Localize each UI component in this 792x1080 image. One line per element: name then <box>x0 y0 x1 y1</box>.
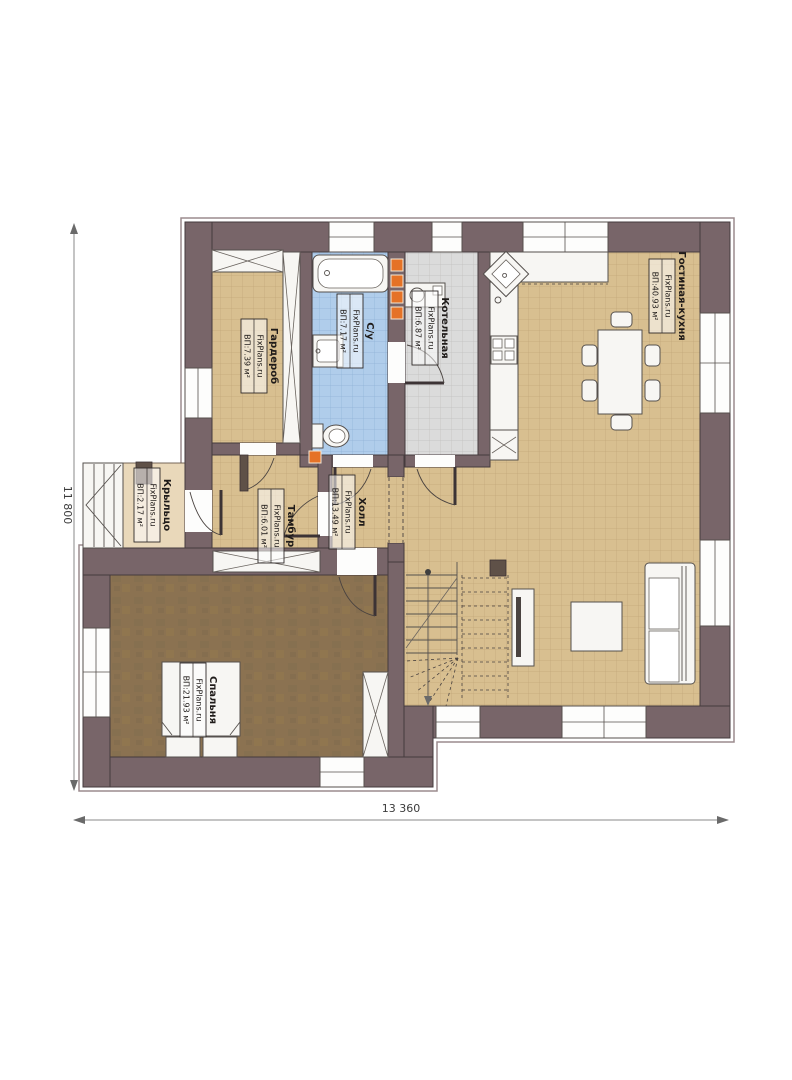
watermark: FixPlans.ru <box>273 504 282 547</box>
opening-hall-living <box>388 477 404 543</box>
watermark: FixPlans.ru <box>427 306 436 349</box>
floor-plan-page: Гостиная-кухня FixPlans.ru ВП:40.93 м² К… <box>0 0 792 1080</box>
closet-bedroom <box>363 672 388 757</box>
dining-chair <box>645 380 660 401</box>
room-area-hall: ВП:13.49 м² <box>331 488 340 537</box>
room-name-porch: Крыльцо <box>161 479 172 531</box>
window-left-wardrobe <box>185 368 212 418</box>
watermark: FixPlans.ru <box>149 483 158 526</box>
toilet <box>312 424 349 448</box>
room-area-porch: ВП:2.17 м² <box>136 483 145 527</box>
room-area-vestibule: ВП:6.01 м² <box>260 504 269 548</box>
floor-plan-drawing: Гостиная-кухня FixPlans.ru ВП:40.93 м² К… <box>0 0 792 1080</box>
watermark: FixPlans.ru <box>256 334 265 377</box>
window-bottom-bedroom <box>320 757 364 787</box>
tv-stand <box>512 589 534 666</box>
floor-bedroom <box>110 575 388 757</box>
stove <box>491 336 517 364</box>
dimension-height: 11 800 <box>61 223 78 791</box>
room-name-vestibule: Тамбур <box>285 505 297 547</box>
window-bottom-living <box>562 706 646 738</box>
room-name-bedroom: Спальня <box>207 676 218 724</box>
window-bottom-stairs <box>436 706 480 738</box>
dining-table <box>598 330 642 414</box>
label-porch: Крыльцо FixPlans.ru ВП:2.17 м² <box>134 468 172 542</box>
wall-bottom-bedroom <box>83 757 433 787</box>
pillow <box>166 737 200 757</box>
room-name-living: Гостиная-кухня <box>676 251 687 340</box>
room-area-bedroom: ВП:21.93 м² <box>182 676 191 725</box>
wall-wardrobe-bathroom <box>300 252 312 455</box>
room-name-hall: Холл <box>356 497 367 526</box>
kitchen-base-cabinet <box>490 430 518 460</box>
stairs-newel-post <box>490 560 506 576</box>
watermark: FixPlans.ru <box>195 678 204 721</box>
window-top-2 <box>432 222 462 252</box>
dimension-height-text: 11 800 <box>61 486 74 525</box>
label-wardrobe: Гардероб FixPlans.ru ВП:7.39 м² <box>241 319 280 393</box>
room-area-wardrobe: ВП:7.39 м² <box>243 334 252 378</box>
dimension-width-text: 13 360 <box>382 802 421 815</box>
dining-chair <box>611 312 632 327</box>
closet-wardrobe-right <box>283 252 300 443</box>
wall-boiler-kitchen <box>478 252 490 467</box>
dining-chair <box>611 415 632 430</box>
dining-chair <box>582 345 597 366</box>
wall-hall-living-lower <box>388 543 404 562</box>
room-area-bathroom: ВП:7.17 м² <box>339 309 348 353</box>
room-name-boiler: Котельная <box>439 297 450 358</box>
porch-steps <box>83 463 123 548</box>
dining-chair <box>645 345 660 366</box>
wall-right <box>700 222 730 738</box>
bathtub <box>313 255 388 292</box>
dimension-width: 13 360 <box>73 802 729 824</box>
room-area-living: ВП:40.93 м² <box>651 272 660 321</box>
wall-bedroom-right <box>388 562 404 757</box>
tv-screen <box>516 597 521 657</box>
wall-hall-living-upper <box>388 455 404 477</box>
window-top-1 <box>329 222 374 252</box>
watermark: FixPlans.ru <box>344 490 353 533</box>
closet-wardrobe-top <box>212 250 283 272</box>
watermark: FixPlans.ru <box>664 274 673 317</box>
room-name-wardrobe: Гардероб <box>268 328 280 384</box>
window-left-bedroom <box>83 628 110 717</box>
window-right-sofa <box>700 540 730 626</box>
window-kitchen <box>523 222 608 252</box>
window-right-dining <box>700 313 730 413</box>
coffee-table <box>571 602 622 651</box>
room-name-bathroom: С/у <box>364 322 375 340</box>
label-boiler: Котельная FixPlans.ru ВП:6.87 м² <box>412 291 450 365</box>
pillow <box>203 737 237 757</box>
label-living: Гостиная-кухня FixPlans.ru ВП:40.93 м² <box>649 251 687 340</box>
room-area-boiler: ВП:6.87 м² <box>414 306 423 350</box>
watermark: FixPlans.ru <box>352 309 361 352</box>
dining-chair <box>582 380 597 401</box>
sofa <box>645 563 695 684</box>
